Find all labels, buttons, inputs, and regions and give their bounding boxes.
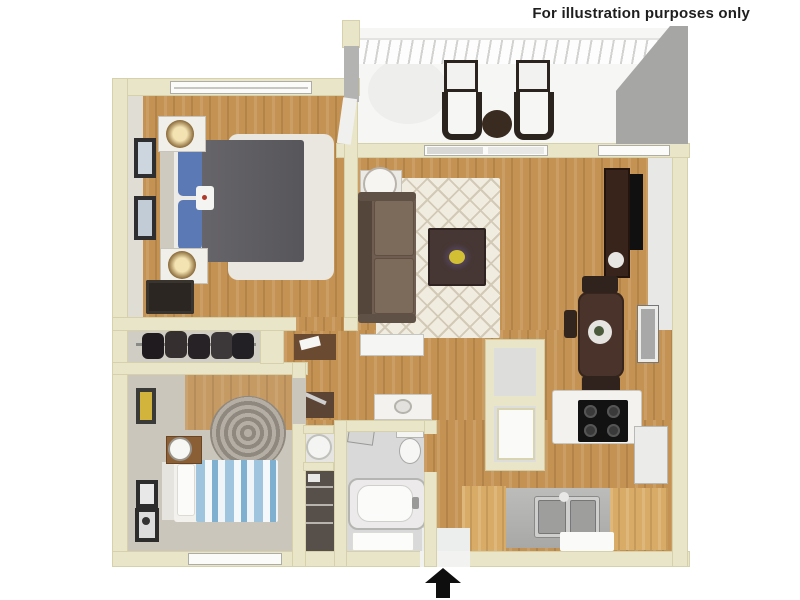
coffee-table-centerpiece (449, 250, 465, 264)
bedroom2-lamp (170, 439, 190, 459)
balcony-wall-left (344, 46, 359, 102)
entrance-arrow-icon (425, 568, 461, 583)
balcony-post-left (342, 20, 360, 48)
entrance-arrow-shaft (436, 582, 450, 598)
closet-clothes (232, 333, 254, 359)
bathtub-faucet (412, 497, 419, 509)
wall-mirror (638, 306, 658, 362)
sofa-cushion-top (374, 200, 414, 256)
bedroom2-art-detail (142, 517, 150, 525)
linen-shelf (306, 522, 333, 524)
bedroom2-round-rug (210, 396, 286, 470)
floor-plan-canvas: For illustration purposes only (0, 0, 800, 600)
wall-closet-side (260, 330, 284, 364)
tv-console-decor (608, 252, 624, 268)
linen-shelf (306, 486, 333, 488)
sink-basin-right (570, 500, 596, 534)
dining-chair-top (582, 276, 618, 293)
master-bed-throw-accent (202, 195, 207, 200)
pantry-divider (486, 396, 544, 406)
living-window (598, 145, 670, 156)
sofa-arm-top (358, 192, 416, 201)
dining-chair-left (564, 310, 577, 338)
bedroom2-art-small-top (136, 480, 158, 508)
bedroom2-art-small-bottom (135, 508, 159, 542)
bedroom2-window (188, 553, 282, 565)
kitchen-counter-right (610, 488, 668, 550)
master-bench (146, 280, 194, 314)
sliding-door-panel (427, 147, 483, 154)
balcony-railing (358, 38, 660, 64)
bath-mat (352, 532, 414, 551)
tv (630, 174, 643, 250)
master-wall-art-top (134, 138, 156, 178)
closet-clothes (211, 332, 233, 359)
wall-bath-left (334, 420, 347, 567)
kitchen-mat (560, 532, 614, 551)
linen-items (308, 474, 320, 482)
bath-vanity-sink (394, 399, 412, 414)
bedroom2-bed-pillow (177, 464, 195, 516)
master-lamp-top (166, 120, 194, 148)
bedroom2-art-yellow (136, 388, 156, 424)
master-window-mullion (174, 87, 308, 89)
laundry-basket (308, 436, 330, 458)
wall-niche-bottom (303, 462, 334, 471)
disclaimer-text: For illustration purposes only (420, 5, 750, 22)
master-door-opening (296, 317, 344, 331)
master-bed-comforter (202, 140, 304, 262)
balcony-chair-left-seat (442, 92, 482, 140)
master-lamp-bottom (168, 251, 196, 279)
bath-door-opening (424, 434, 437, 472)
balcony-chair-left-back (444, 60, 478, 92)
bedroom2-bed-headboard (162, 462, 174, 520)
balcony-chair-right-seat (514, 92, 554, 140)
balcony-table (482, 110, 512, 138)
closet-clothes (188, 334, 210, 359)
sofa-arm-bottom (358, 314, 416, 323)
sliding-door-panel (488, 147, 544, 154)
master-wall-art-bottom (134, 196, 156, 240)
master-bed-headboard (160, 140, 174, 262)
closet-clothes (165, 331, 187, 358)
bedroom2-door-opening (292, 378, 306, 424)
sink-faucet (559, 492, 569, 502)
dining-centerpiece-detail (594, 326, 604, 336)
wall-bath-top (334, 420, 437, 432)
bathtub-basin (357, 485, 413, 522)
burner (584, 424, 597, 437)
burner (607, 424, 620, 437)
bedroom2-bed-cover (196, 460, 278, 522)
linen-shelf (306, 504, 333, 506)
sink-basin-left (538, 500, 566, 534)
hall-console-white (360, 334, 424, 356)
fridge (634, 426, 668, 484)
wall-niche-top (303, 425, 334, 434)
toilet-bowl (399, 438, 421, 464)
burner (607, 405, 620, 418)
sofa-back (358, 196, 372, 318)
linen-closet-interior (305, 470, 334, 551)
balcony-chair-right-back (516, 60, 550, 92)
burner (584, 405, 597, 418)
closet-clothes (142, 333, 164, 359)
balcony-floor-shadow (368, 58, 448, 124)
sofa-cushion-bottom (374, 258, 414, 314)
pantry-door (497, 408, 535, 460)
